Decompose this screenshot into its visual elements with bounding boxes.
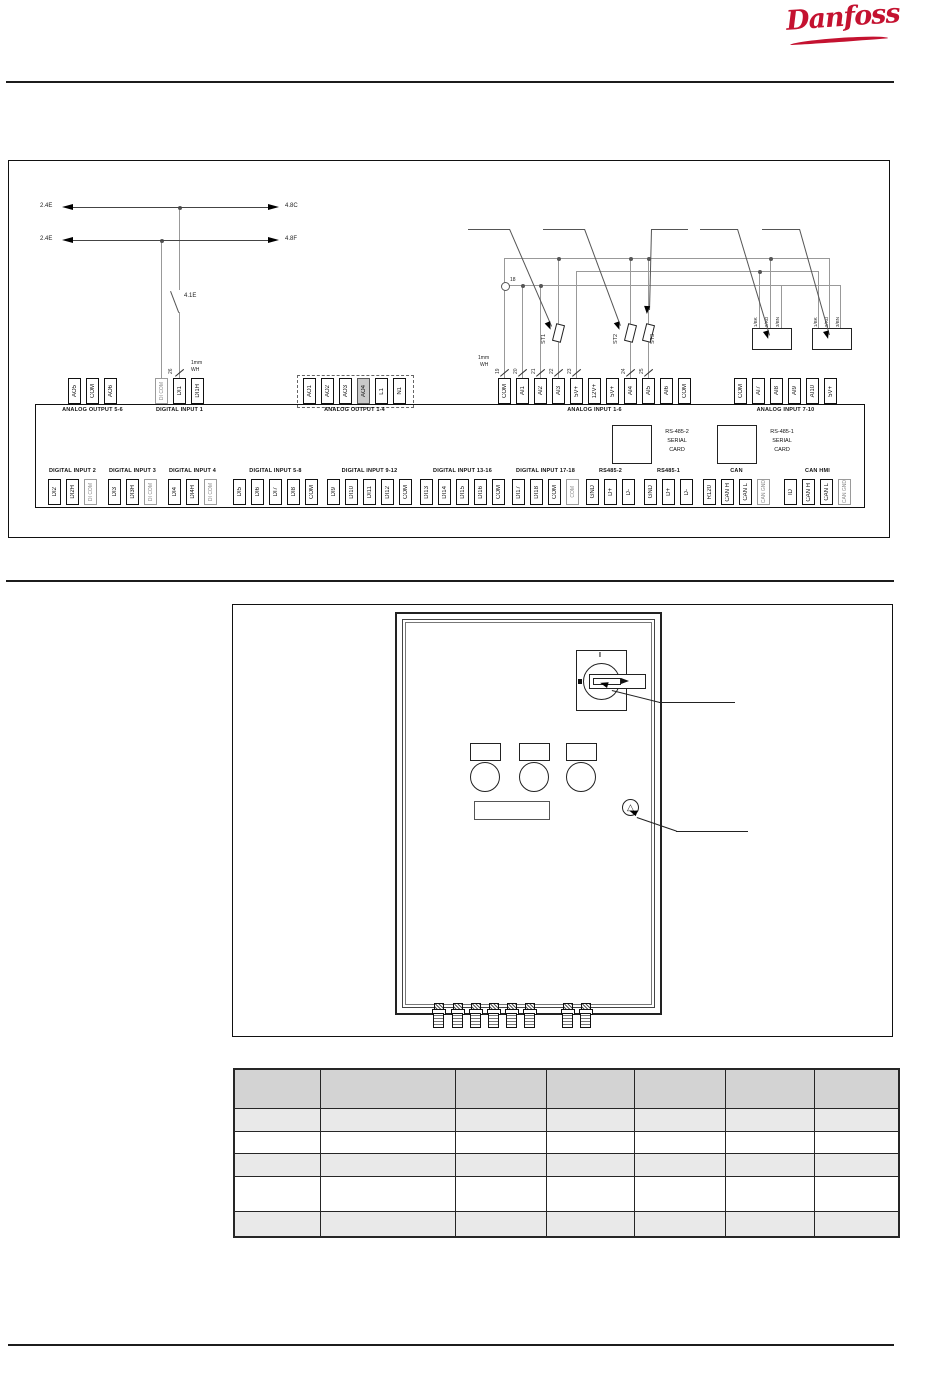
main-switch-handle-tip xyxy=(621,678,629,684)
terminal-label: AO3 xyxy=(343,385,349,397)
indicator-lamp-1[interactable] xyxy=(470,762,500,792)
cable-gland-body xyxy=(470,1013,481,1028)
terminal-ai7: AI7 xyxy=(752,378,765,404)
spec-table-cell xyxy=(635,1211,726,1237)
terminal-label: L1 xyxy=(379,388,385,395)
ref-arrow-left-2 xyxy=(62,237,73,243)
ref-label-right-2: 4.8F xyxy=(285,236,297,242)
main-switch-off-mark xyxy=(578,679,582,684)
terminal-ai1: AI1 xyxy=(516,378,529,404)
cable-gland-body xyxy=(506,1013,517,1028)
spec-table-cell xyxy=(321,1108,456,1131)
wire-vertical xyxy=(781,285,782,328)
terminal-label: COM xyxy=(682,384,688,398)
spec-table-cell xyxy=(635,1153,726,1176)
terminal-label: AO4 xyxy=(361,385,367,397)
callout-diagonal xyxy=(649,229,652,310)
ref-label-left-2: 2.4E xyxy=(40,236,52,242)
spec-table-cell xyxy=(321,1131,456,1153)
terminal-ao6: AO6 xyxy=(104,378,117,404)
spec-table-cell xyxy=(815,1176,900,1211)
spec-table-cell xyxy=(815,1131,900,1153)
wire-number: 20 xyxy=(513,350,519,374)
transmitter-wire-label: 3/BN xyxy=(775,302,780,327)
callout-line xyxy=(700,229,738,230)
terminal-label: AO6 xyxy=(108,385,114,397)
spec-table-header-row xyxy=(234,1069,899,1108)
switch-ref-label: 4.1E xyxy=(184,293,196,299)
transmitter-box xyxy=(752,328,792,350)
spec-table xyxy=(233,1068,900,1238)
cable-gland-body xyxy=(562,1013,573,1028)
callout-arrowhead xyxy=(644,305,650,313)
lamp-label-2 xyxy=(519,743,550,761)
cable-gland-body xyxy=(433,1013,444,1028)
wire-number: 22 xyxy=(549,350,555,374)
spec-table-cell xyxy=(726,1108,815,1131)
wire-vertical xyxy=(179,312,180,378)
wire-vertical xyxy=(504,258,505,378)
spec-table-cell xyxy=(234,1176,321,1211)
ref-arrow-right-1 xyxy=(268,204,279,210)
terminal-label: AI1 xyxy=(520,386,526,395)
spec-table-cell xyxy=(815,1069,900,1108)
wire-gauge-ai-l1: 1mm xyxy=(478,355,489,361)
wire-junction-dot xyxy=(629,257,633,261)
wire-junction-dot xyxy=(521,284,525,288)
terminal-ai5: AI5 xyxy=(642,378,655,404)
spec-table-cell xyxy=(234,1131,321,1153)
spec-table-cell xyxy=(234,1069,321,1108)
terminal-di1h: DI1H xyxy=(191,378,204,404)
spec-table-cell xyxy=(635,1176,726,1211)
cable-gland-body xyxy=(580,1013,591,1028)
main-switch-handle[interactable] xyxy=(589,674,646,689)
terminal-ai4: AI4 xyxy=(624,378,637,404)
ref-wire-2 xyxy=(73,240,268,241)
terminal-com: COM xyxy=(734,378,747,404)
callout-line xyxy=(762,229,800,230)
wire-junction-dot xyxy=(539,284,543,288)
terminal-l1: L1 xyxy=(375,378,388,404)
switch-callout-line xyxy=(659,702,735,703)
indicator-lamp-3[interactable] xyxy=(566,762,596,792)
terminal-ai10: AI10 xyxy=(806,378,819,404)
wire-junction-dot xyxy=(769,257,773,261)
sensor-symbol-st2 xyxy=(624,323,637,343)
spec-table-cell xyxy=(456,1069,547,1108)
wire-bus xyxy=(576,271,818,272)
terminal-5v+: 5V+ xyxy=(570,378,583,404)
terminal-12v+: 12V+ xyxy=(588,378,601,404)
spec-table-row xyxy=(234,1211,899,1237)
controller-body xyxy=(35,404,865,508)
cable-gland-body xyxy=(452,1013,463,1028)
terminal-5v+: 5V+ xyxy=(824,378,837,404)
spec-table-cell xyxy=(456,1153,547,1176)
spec-table-row xyxy=(234,1153,899,1176)
spec-table-row xyxy=(234,1176,899,1211)
terminal-di1: DI1 xyxy=(173,378,186,404)
terminal-label: AI4 xyxy=(628,386,634,395)
node-18-label: 18 xyxy=(510,277,516,283)
transmitter-wire-label: 1/BK xyxy=(813,302,818,327)
wire-vertical xyxy=(829,258,830,328)
spec-table-cell xyxy=(635,1108,726,1131)
di1-switch-blade xyxy=(170,291,179,312)
lamp-label-1 xyxy=(470,743,501,761)
name-plate xyxy=(474,801,550,820)
terminal-label: DI1 xyxy=(177,386,183,395)
wire-gauge-di1-l2: WH xyxy=(191,367,199,373)
cable-gland-body xyxy=(488,1013,499,1028)
wire-vertical xyxy=(630,258,631,378)
ref-arrow-right-2 xyxy=(268,237,279,243)
spec-table-cell xyxy=(726,1131,815,1153)
cable-gland-body xyxy=(524,1013,535,1028)
wire-number: 19 xyxy=(495,350,501,374)
terminal-label: 5V+ xyxy=(574,386,580,397)
transmitter-wire-label: 3/BN xyxy=(835,302,840,327)
spec-table-cell xyxy=(321,1211,456,1237)
spec-table-row xyxy=(234,1131,899,1153)
wire-junction-dot xyxy=(758,270,762,274)
terminal-label: AO1 xyxy=(307,385,313,397)
terminal-ao3: AO3 xyxy=(339,378,352,404)
spec-table-cell xyxy=(547,1131,635,1153)
transmitter-box xyxy=(812,328,852,350)
terminal-label: AO5 xyxy=(72,385,78,397)
spec-table-row xyxy=(234,1108,899,1131)
terminal-label: AI6 xyxy=(664,386,670,395)
terminal-ai8: AI8 xyxy=(770,378,783,404)
terminal-label: DI1H xyxy=(195,384,201,398)
terminal-label: AI8 xyxy=(774,386,780,395)
terminal-label: AI3 xyxy=(556,386,562,395)
callout-line xyxy=(543,229,585,230)
spec-table-cell xyxy=(726,1176,815,1211)
spec-table-cell xyxy=(815,1108,900,1131)
wire-vertical xyxy=(840,285,841,328)
terminal-ao2: AO2 xyxy=(321,378,334,404)
callout-line xyxy=(468,229,510,230)
callout-line xyxy=(652,229,688,230)
terminal-ao1: AO1 xyxy=(303,378,316,404)
wire-number: 24 xyxy=(621,350,627,374)
spec-table-cell xyxy=(815,1153,900,1176)
wire-vertical xyxy=(161,240,162,378)
wire-bus xyxy=(508,285,840,286)
spec-table-cell xyxy=(234,1108,321,1131)
transmitter-wire-label: 1/BK xyxy=(753,302,758,327)
ref-wire-1 xyxy=(73,207,268,208)
spec-table-cell xyxy=(635,1131,726,1153)
terminal-label: 5V+ xyxy=(828,386,834,397)
callout-diagonal xyxy=(584,229,621,326)
wire-vertical xyxy=(522,285,523,378)
spec-table-cell xyxy=(547,1211,635,1237)
ref-arrow-left-1 xyxy=(62,204,73,210)
di1-wire-number: 26 xyxy=(168,350,174,374)
terminal-label: AI2 xyxy=(538,386,544,395)
spec-table-cell xyxy=(726,1069,815,1108)
wire-vertical xyxy=(558,258,559,378)
sensor-symbol-st1 xyxy=(552,323,565,343)
terminal-label: AI7 xyxy=(756,386,762,395)
spec-table-cell xyxy=(456,1176,547,1211)
callout-arrowhead xyxy=(614,321,622,331)
wire-bus xyxy=(504,258,829,259)
wire-number: 23 xyxy=(567,350,573,374)
terminal-5v+: 5V+ xyxy=(606,378,619,404)
terminal-ai2: AI2 xyxy=(534,378,547,404)
terminal-com: COM xyxy=(86,378,99,404)
terminal-label: N1 xyxy=(397,387,403,395)
terminal-com: COM xyxy=(498,378,511,404)
terminal-label: COM xyxy=(90,384,96,398)
terminal-label: 12V+ xyxy=(592,384,598,398)
spec-table-cell xyxy=(815,1211,900,1237)
wire-gauge-di1-l1: 1mm xyxy=(191,360,202,366)
spec-table-cell xyxy=(726,1153,815,1176)
spec-table-cell xyxy=(321,1153,456,1176)
section-rule xyxy=(6,580,894,582)
spec-table-cell xyxy=(456,1108,547,1131)
ref-label-right-1: 4.8C xyxy=(285,203,298,209)
main-switch-on-mark: I xyxy=(599,652,601,659)
manual-page: Danfoss AO5COMAO6ANALOG OUTPUT 5-6DI COM… xyxy=(0,0,950,1378)
spec-table-cell xyxy=(321,1176,456,1211)
spec-table-cell xyxy=(234,1153,321,1176)
wire-gauge-ai-l2: WH xyxy=(480,362,488,368)
terminal-label: DI COM xyxy=(159,382,165,400)
lock-callout-line xyxy=(676,831,748,832)
spec-table-cell xyxy=(234,1211,321,1237)
terminal-ai6: AI6 xyxy=(660,378,673,404)
spec-table-wrap xyxy=(233,1068,900,1238)
terminal-label: AO2 xyxy=(325,385,331,397)
terminal-label: AI10 xyxy=(810,385,816,397)
lamp-label-3 xyxy=(566,743,597,761)
spec-table-cell xyxy=(635,1069,726,1108)
terminal-ai9: AI9 xyxy=(788,378,801,404)
wire-junction-dot xyxy=(557,257,561,261)
wire-vertical xyxy=(770,258,771,328)
connector-node xyxy=(501,282,510,291)
spec-table-cell xyxy=(547,1069,635,1108)
wire-vertical xyxy=(576,271,577,378)
terminal-ao5: AO5 xyxy=(68,378,81,404)
spec-table-cell xyxy=(547,1108,635,1131)
ref-label-left-1: 2.4E xyxy=(40,203,52,209)
terminal-n1: N1 xyxy=(393,378,406,404)
terminal-label: AI5 xyxy=(646,386,652,395)
terminal-ao4: AO4 xyxy=(357,378,370,404)
indicator-lamp-2[interactable] xyxy=(519,762,549,792)
terminal-label: COM xyxy=(738,384,744,398)
wire-vertical xyxy=(179,207,180,290)
sensor-label-st3: ST3 xyxy=(650,318,656,344)
terminal-ai3: AI3 xyxy=(552,378,565,404)
spec-table-cell xyxy=(547,1176,635,1211)
terminal-label: AI9 xyxy=(792,386,798,395)
spec-table-cell xyxy=(321,1069,456,1108)
terminal-com: COM xyxy=(678,378,691,404)
terminal-label: 5V+ xyxy=(610,386,616,397)
spec-table-cell xyxy=(456,1131,547,1153)
terminal-label: COM xyxy=(502,384,508,398)
wire-number: 25 xyxy=(639,350,645,374)
spec-table-cell xyxy=(547,1153,635,1176)
spec-table-cell xyxy=(726,1211,815,1237)
footer-rule xyxy=(8,1344,894,1346)
wire-number: 21 xyxy=(531,350,537,374)
terminal-di-com: DI COM xyxy=(155,378,168,404)
spec-table-cell xyxy=(456,1211,547,1237)
